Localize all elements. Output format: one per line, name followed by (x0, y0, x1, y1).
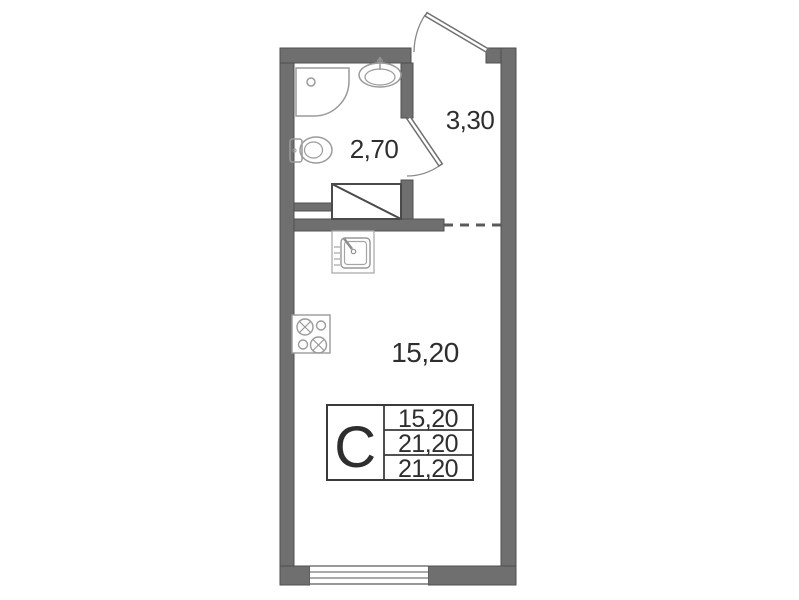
wall-top (280, 48, 411, 63)
window-icon (310, 565, 428, 586)
wall-bottom-right (428, 566, 516, 585)
legend-row-total-area: 21,20 (398, 455, 458, 483)
wall-bath-upper (401, 63, 413, 118)
wall-bottom-left (280, 566, 310, 585)
legend-type-letter: С (334, 415, 375, 480)
room-label-hall: 3,30 (446, 105, 495, 135)
floor-plan-page: 2,70 3,30 15,20 С 15,20 21,20 21,20 (0, 0, 799, 600)
legend-table: С 15,20 21,20 21,20 (327, 405, 473, 483)
kitchen-sink-icon (332, 231, 374, 273)
shower-tray-icon (296, 68, 349, 116)
legend-row-total-living: 15,20 (398, 405, 458, 433)
wall-right (501, 48, 516, 585)
wall-bath-bottom-stub (294, 203, 332, 211)
wall-kitchen-divider (294, 219, 444, 231)
wardrobe-icon (332, 184, 401, 219)
toilet-icon (290, 137, 332, 163)
legend-row-area: 21,20 (398, 430, 458, 458)
bathroom-door-icon (407, 117, 442, 176)
stove-icon (292, 315, 330, 353)
entrance-door-icon (414, 13, 488, 52)
room-label-bathroom: 2,70 (350, 134, 399, 164)
room-label-living: 15,20 (391, 337, 459, 368)
floor-plan: 2,70 3,30 15,20 С 15,20 21,20 21,20 (0, 0, 799, 600)
